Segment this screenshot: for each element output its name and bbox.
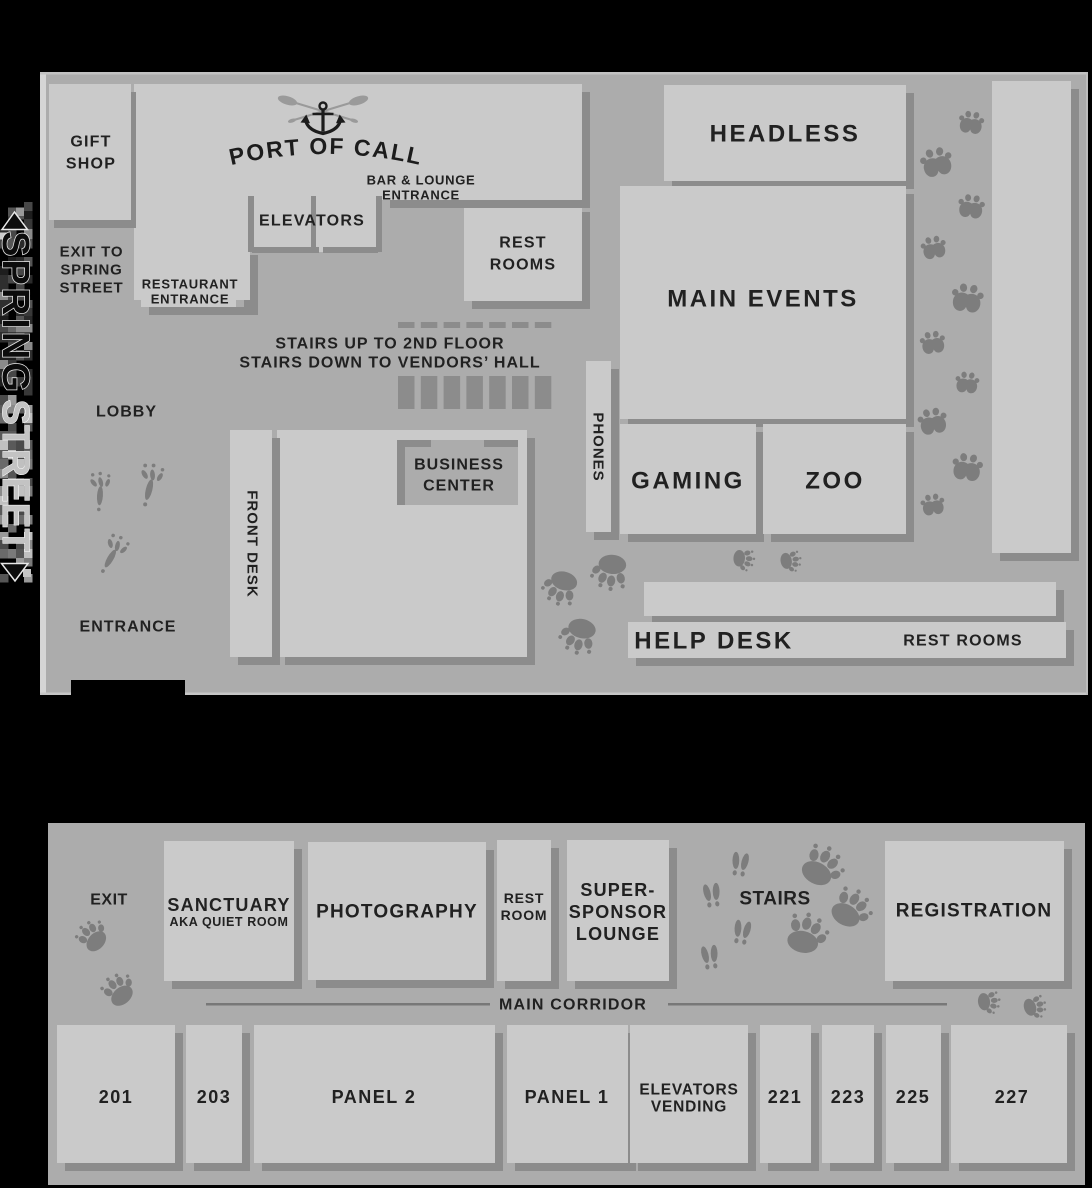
svg-text:EXIT TO: EXIT TO (60, 244, 124, 261)
svg-text:STREET: STREET (0, 400, 36, 553)
svg-text:BAR & LOUNGE: BAR & LOUNGE (367, 173, 476, 188)
svg-text:203: 203 (197, 1087, 232, 1107)
svg-text:MAIN CORRIDOR: MAIN CORRIDOR (499, 997, 647, 1014)
svg-text:PHOTOGRAPHY: PHOTOGRAPHY (316, 902, 478, 923)
svg-text:CENTER: CENTER (423, 478, 495, 495)
svg-text:VENDING: VENDING (651, 1099, 727, 1116)
svg-text:ELEVATORS: ELEVATORS (639, 1082, 738, 1099)
svg-text:SPRING: SPRING (60, 262, 122, 279)
svg-text:ROOMS: ROOMS (490, 257, 556, 274)
svg-text:PHONES: PHONES (590, 412, 607, 481)
svg-text:HEADLESS: HEADLESS (710, 121, 861, 148)
svg-text:ELEVATORS: ELEVATORS (259, 213, 365, 230)
svg-text:ZOO: ZOO (805, 468, 865, 495)
svg-text:RESTAURANT: RESTAURANT (142, 277, 239, 292)
svg-text:REGISTRATION: REGISTRATION (896, 901, 1053, 922)
svg-text:STAIRS UP TO 2ND FLOOR: STAIRS UP TO 2ND FLOOR (275, 336, 504, 353)
svg-text:EXIT: EXIT (90, 892, 128, 909)
svg-text:GAMING: GAMING (631, 468, 745, 495)
svg-text:BUSINESS: BUSINESS (414, 457, 504, 474)
svg-text:MAIN EVENTS: MAIN EVENTS (667, 286, 859, 313)
svg-text:STAIRS: STAIRS (739, 889, 810, 910)
svg-text:AKA QUIET ROOM: AKA QUIET ROOM (169, 915, 288, 929)
svg-text:LOUNGE: LOUNGE (576, 924, 660, 944)
svg-text:227: 227 (995, 1087, 1030, 1107)
svg-text:SUPER-: SUPER- (580, 880, 655, 900)
svg-text:SHOP: SHOP (66, 156, 116, 173)
svg-text:ENTRANCE: ENTRANCE (151, 292, 230, 307)
svg-text:201: 201 (99, 1087, 134, 1107)
svg-text:221: 221 (768, 1087, 803, 1107)
svg-text:GIFT: GIFT (70, 134, 111, 151)
svg-text:PANEL 1: PANEL 1 (525, 1087, 610, 1107)
svg-text:HELP DESK: HELP DESK (634, 628, 793, 655)
svg-text:SPONSOR: SPONSOR (569, 902, 667, 922)
svg-text:REST: REST (504, 890, 545, 906)
svg-text:SPRING: SPRING (0, 231, 36, 395)
svg-text:SANCTUARY: SANCTUARY (167, 895, 290, 915)
svg-text:PANEL 2: PANEL 2 (332, 1087, 417, 1107)
svg-text:LOBBY: LOBBY (96, 404, 157, 421)
svg-text:223: 223 (831, 1087, 866, 1107)
svg-text:STREET: STREET (60, 280, 124, 297)
svg-text:REST: REST (499, 235, 546, 252)
svg-text:REST ROOMS: REST ROOMS (903, 633, 1023, 650)
svg-text:ENTRANCE: ENTRANCE (382, 188, 460, 203)
svg-text:225: 225 (896, 1087, 931, 1107)
svg-text:ENTRANCE: ENTRANCE (80, 619, 177, 636)
svg-text:FRONT DESK: FRONT DESK (244, 490, 261, 598)
svg-text:STAIRS DOWN TO VENDORS’ HALL: STAIRS DOWN TO VENDORS’ HALL (239, 355, 540, 372)
svg-text:ROOM: ROOM (501, 907, 548, 923)
